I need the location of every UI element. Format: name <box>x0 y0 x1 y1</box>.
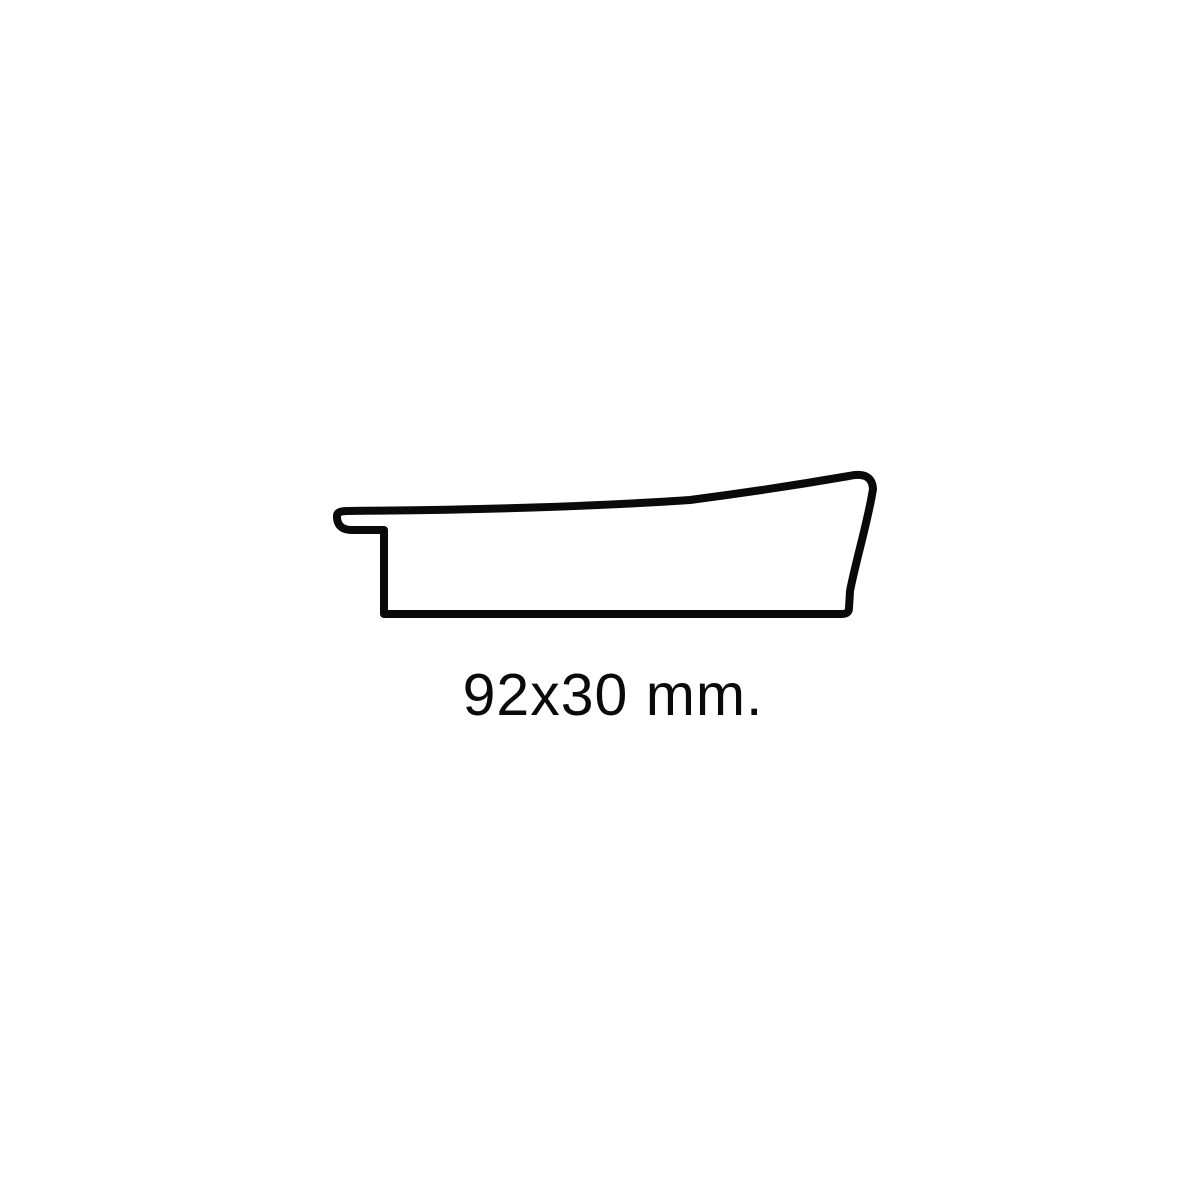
dimension-caption: 92x30 mm. <box>463 666 764 725</box>
moulding-profile-diagram <box>0 0 1181 1181</box>
moulding-profile-outline <box>337 475 873 614</box>
drawing-canvas: 92x30 mm. <box>0 0 1181 1181</box>
